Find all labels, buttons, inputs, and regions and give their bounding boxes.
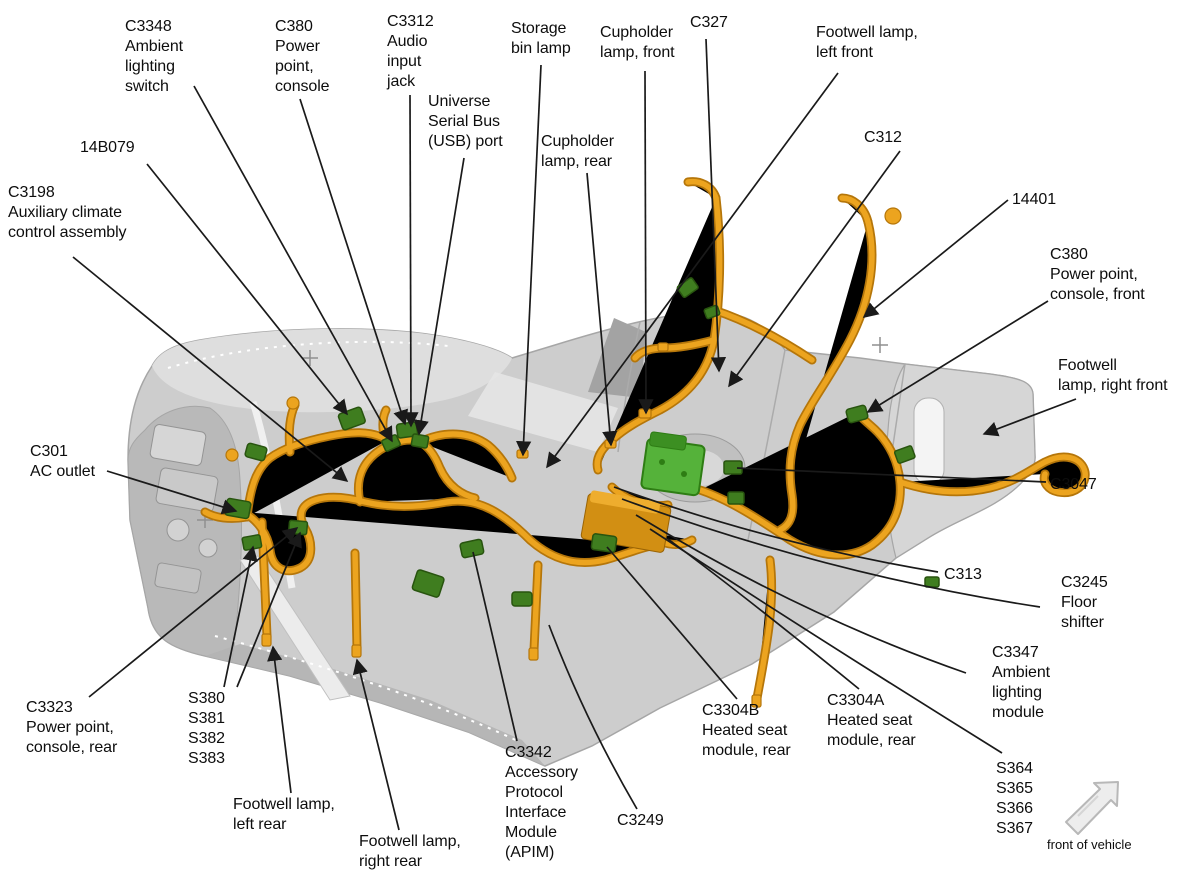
- front-of-vehicle-label: front of vehicle: [1047, 837, 1132, 853]
- callout-c327: C327: [690, 13, 728, 33]
- callout-c3323: C3323 Power point, console, rear: [26, 698, 117, 758]
- callout-c301: C301 AC outlet: [30, 442, 95, 482]
- callout-footwell-lamp-left-front: Footwell lamp, left front: [816, 23, 918, 63]
- callout-14401: 14401: [1012, 190, 1056, 210]
- console-harness-artwork: [0, 0, 1200, 870]
- callout-c380-console: C380 Power point, console: [275, 17, 329, 97]
- callout-storage-bin-lamp: Storage bin lamp: [511, 19, 571, 59]
- callout-c3312: C3312 Audio input jack: [387, 12, 434, 92]
- callout-c312: C312: [864, 128, 902, 148]
- wing-slot: [914, 398, 944, 484]
- callout-footwell-lamp-left-rear: Footwell lamp, left rear: [233, 795, 335, 835]
- callout-c3304b: C3304B Heated seat module, rear: [702, 701, 791, 761]
- callout-c313: C313: [944, 565, 982, 585]
- callout-14b079: 14B079: [80, 138, 135, 158]
- callout-c3347: C3347 Ambient lighting module: [992, 643, 1050, 723]
- callout-cupholder-lamp-front: Cupholder lamp, front: [600, 23, 675, 63]
- callout-c3348: C3348 Ambient lighting switch: [125, 17, 183, 97]
- callout-c3342: C3342 Accessory Protocol Interface Modul…: [505, 743, 578, 863]
- diagram-canvas: C3348 Ambient lighting switch C380 Power…: [0, 0, 1200, 870]
- callout-s364-group: S364 S365 S366 S367: [996, 759, 1033, 839]
- callout-usb-port: Universe Serial Bus (USB) port: [428, 92, 503, 152]
- line-cupholder-lamp-front: [645, 71, 646, 413]
- callout-footwell-lamp-right-rear: Footwell lamp, right rear: [359, 832, 461, 870]
- callout-cupholder-lamp-rear: Cupholder lamp, rear: [541, 132, 614, 172]
- callout-s380-group: S380 S381 S382 S383: [188, 689, 225, 769]
- front-of-vehicle-arrow: [1066, 782, 1118, 834]
- callout-c3047: C3047: [1050, 475, 1097, 495]
- callout-c3245: C3245 Floor shifter: [1061, 573, 1108, 633]
- callout-footwell-lamp-right-front: Footwell lamp, right front: [1058, 356, 1167, 396]
- callout-c3304a: C3304A Heated seat module, rear: [827, 691, 916, 751]
- callout-c380-console-front: C380 Power point, console, front: [1050, 245, 1145, 305]
- callout-c3249: C3249: [617, 811, 664, 831]
- callout-c3198: C3198 Auxiliary climate control assembly: [8, 183, 126, 243]
- line-c3312: [410, 95, 411, 426]
